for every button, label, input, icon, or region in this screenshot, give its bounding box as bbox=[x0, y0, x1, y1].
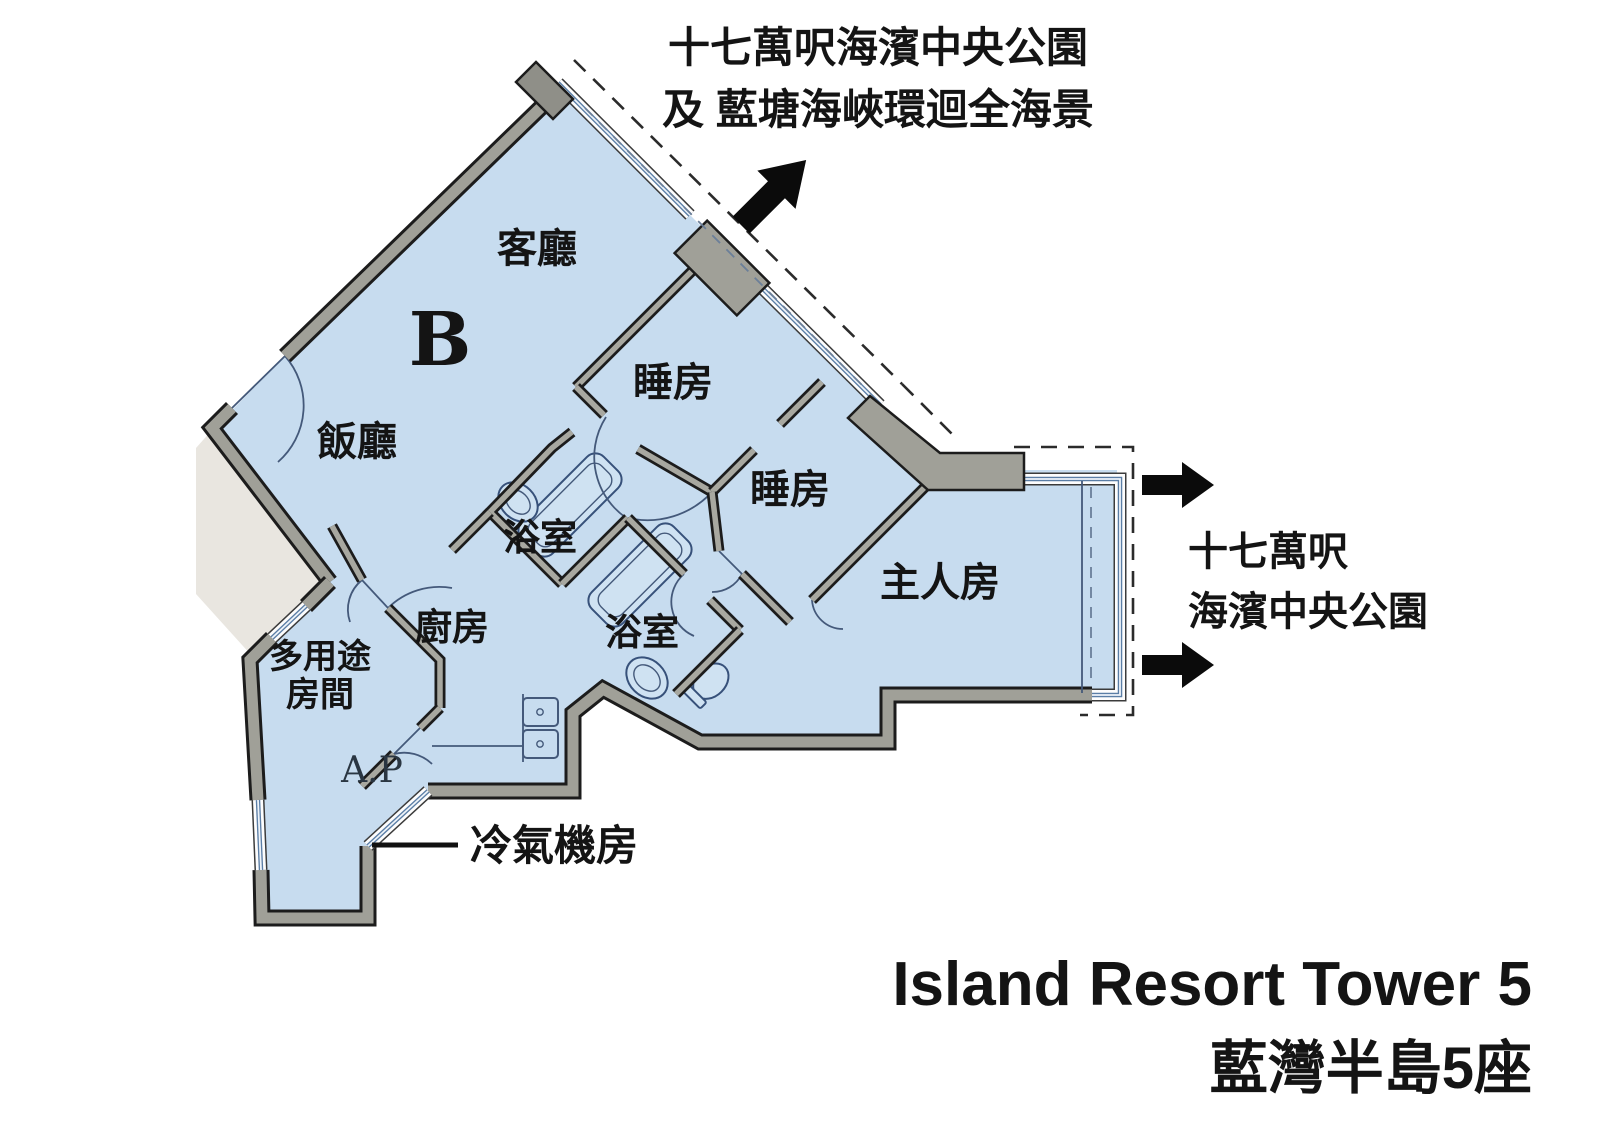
unit-label: B bbox=[409, 297, 472, 383]
right-view-text-line2: 海濱中央公園 bbox=[1188, 590, 1428, 634]
ac-plant-room-callout: 冷氣機房 bbox=[372, 822, 638, 869]
room-label-multi-line2: 房間 bbox=[286, 676, 354, 714]
top-view-text-line2: 及 藍塘海峽環迴全海景 bbox=[662, 86, 1094, 133]
room-label-master: 主人房 bbox=[880, 561, 1000, 605]
room-label-dining: 飯廳 bbox=[317, 419, 397, 464]
right-arrow-upper-icon bbox=[1142, 462, 1214, 508]
title-block: Island Resort Tower 5 藍灣半島5座 bbox=[892, 950, 1532, 1101]
room-label-living: 客廳 bbox=[497, 226, 577, 271]
callout-label-ac-plant-room: 冷氣機房 bbox=[470, 822, 638, 869]
room-label-ap: A.P bbox=[340, 750, 403, 791]
floor-plan-page: 客廳 B 飯廳 睡房 睡房 主人房 浴室 浴室 廚房 多用途 房間 A.P 冷氣… bbox=[0, 0, 1600, 1142]
northeast-arrow-icon bbox=[722, 141, 825, 244]
right-view-text-line1: 十七萬呎 bbox=[1188, 530, 1349, 574]
room-label-bath1: 浴室 bbox=[503, 516, 577, 558]
right-arrow-lower-icon bbox=[1142, 642, 1214, 688]
title-chinese: 藍灣半島5座 bbox=[1210, 1036, 1532, 1101]
room-label-kitchen: 廚房 bbox=[415, 606, 489, 648]
title-english: Island Resort Tower 5 bbox=[892, 950, 1532, 1019]
unit-floor-area bbox=[212, 83, 1117, 918]
top-view-text-line1: 十七萬呎海濱中央公園 bbox=[668, 24, 1088, 71]
room-label-bedroom1: 睡房 bbox=[633, 361, 713, 405]
top-view-annotation: 十七萬呎海濱中央公園 及 藍塘海峽環迴全海景 bbox=[662, 24, 1094, 244]
room-label-bedroom2: 睡房 bbox=[750, 468, 830, 512]
right-view-annotation: 十七萬呎 海濱中央公園 bbox=[1142, 462, 1428, 688]
floor-plan-canvas: 客廳 B 飯廳 睡房 睡房 主人房 浴室 浴室 廚房 多用途 房間 A.P 冷氣… bbox=[0, 0, 1600, 1142]
room-label-bath2: 浴室 bbox=[605, 611, 679, 653]
room-label-multi-line1: 多用途 bbox=[269, 637, 371, 676]
